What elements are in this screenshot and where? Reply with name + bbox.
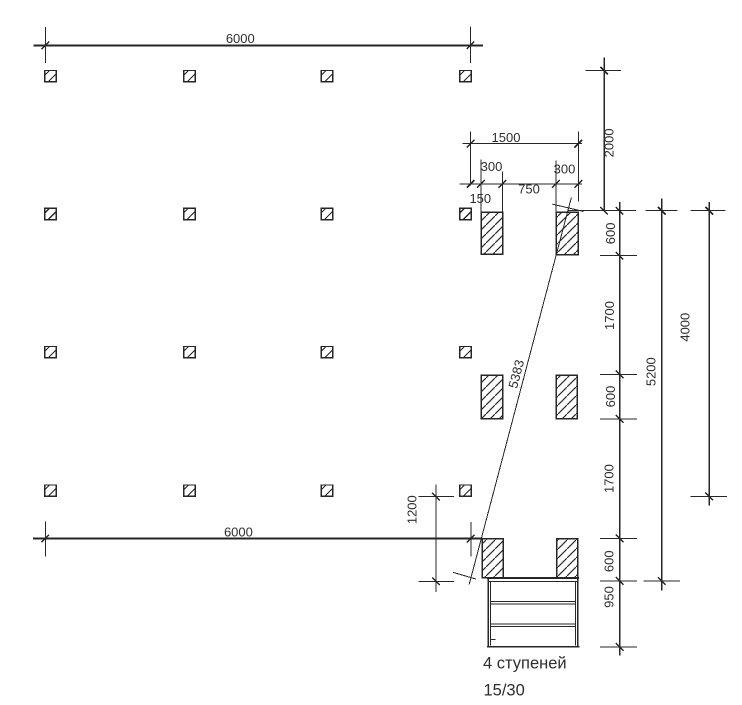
- svg-text:1700: 1700: [602, 301, 617, 330]
- svg-text:1700: 1700: [602, 464, 617, 493]
- svg-text:4 ступеней: 4 ступеней: [483, 655, 567, 673]
- svg-text:5383: 5383: [505, 358, 527, 390]
- svg-text:750: 750: [518, 181, 540, 196]
- svg-text:15/30: 15/30: [484, 682, 525, 700]
- svg-text:600: 600: [603, 386, 618, 408]
- svg-text:1200: 1200: [405, 495, 420, 524]
- svg-text:150: 150: [469, 191, 491, 206]
- svg-text:600: 600: [603, 223, 618, 245]
- svg-text:4000: 4000: [677, 313, 692, 342]
- svg-text:1500: 1500: [492, 130, 521, 145]
- svg-text:600: 600: [602, 550, 617, 572]
- svg-text:6000: 6000: [224, 525, 253, 540]
- svg-text:950: 950: [602, 586, 617, 608]
- svg-text:6000: 6000: [226, 31, 255, 46]
- svg-text:300: 300: [554, 162, 576, 177]
- svg-text:2000: 2000: [601, 128, 616, 157]
- svg-text:5200: 5200: [644, 357, 659, 386]
- svg-text:300: 300: [481, 159, 503, 174]
